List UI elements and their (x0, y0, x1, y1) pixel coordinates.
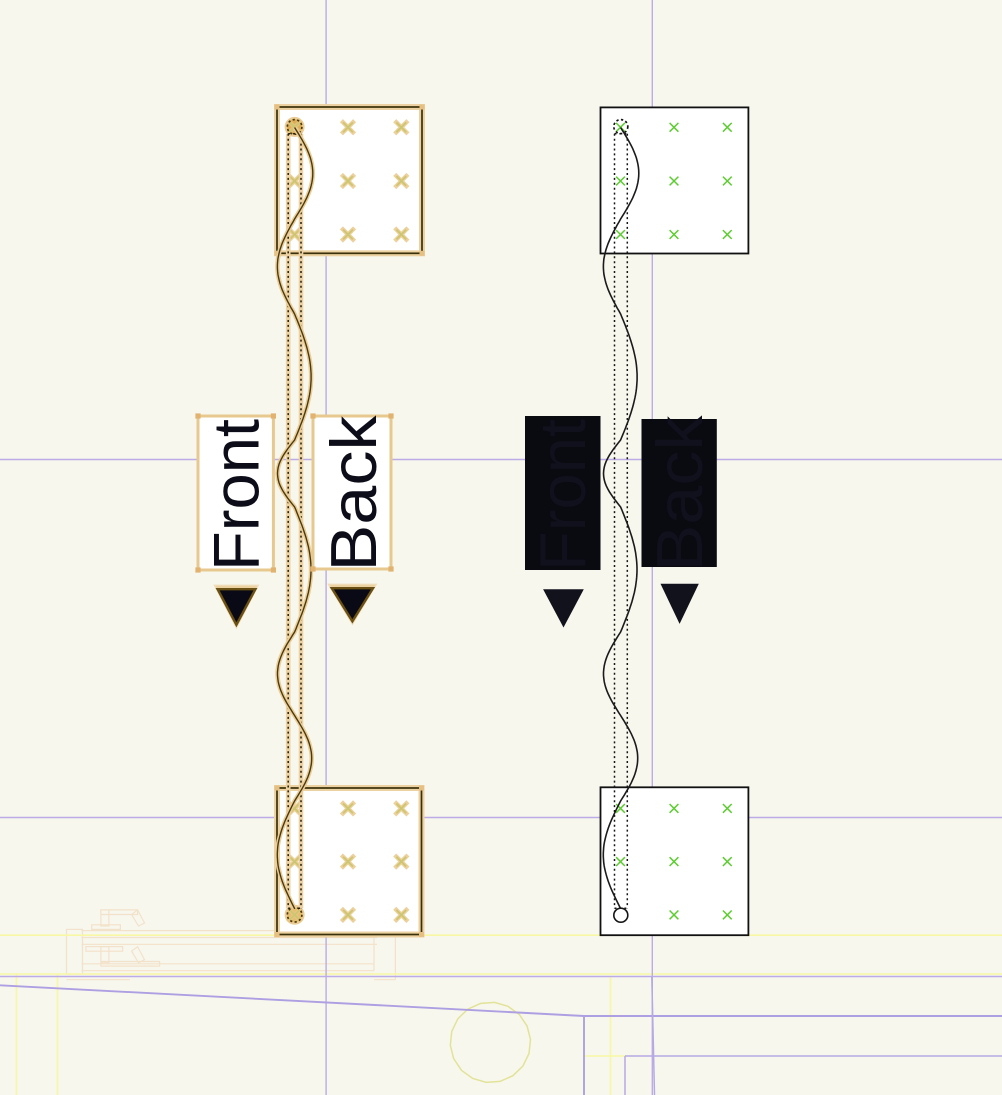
svg-text:Back: Back (643, 415, 716, 572)
svg-text:Back: Back (317, 415, 390, 572)
svg-text:Front: Front (199, 419, 272, 571)
svg-text:Front: Front (526, 419, 599, 571)
